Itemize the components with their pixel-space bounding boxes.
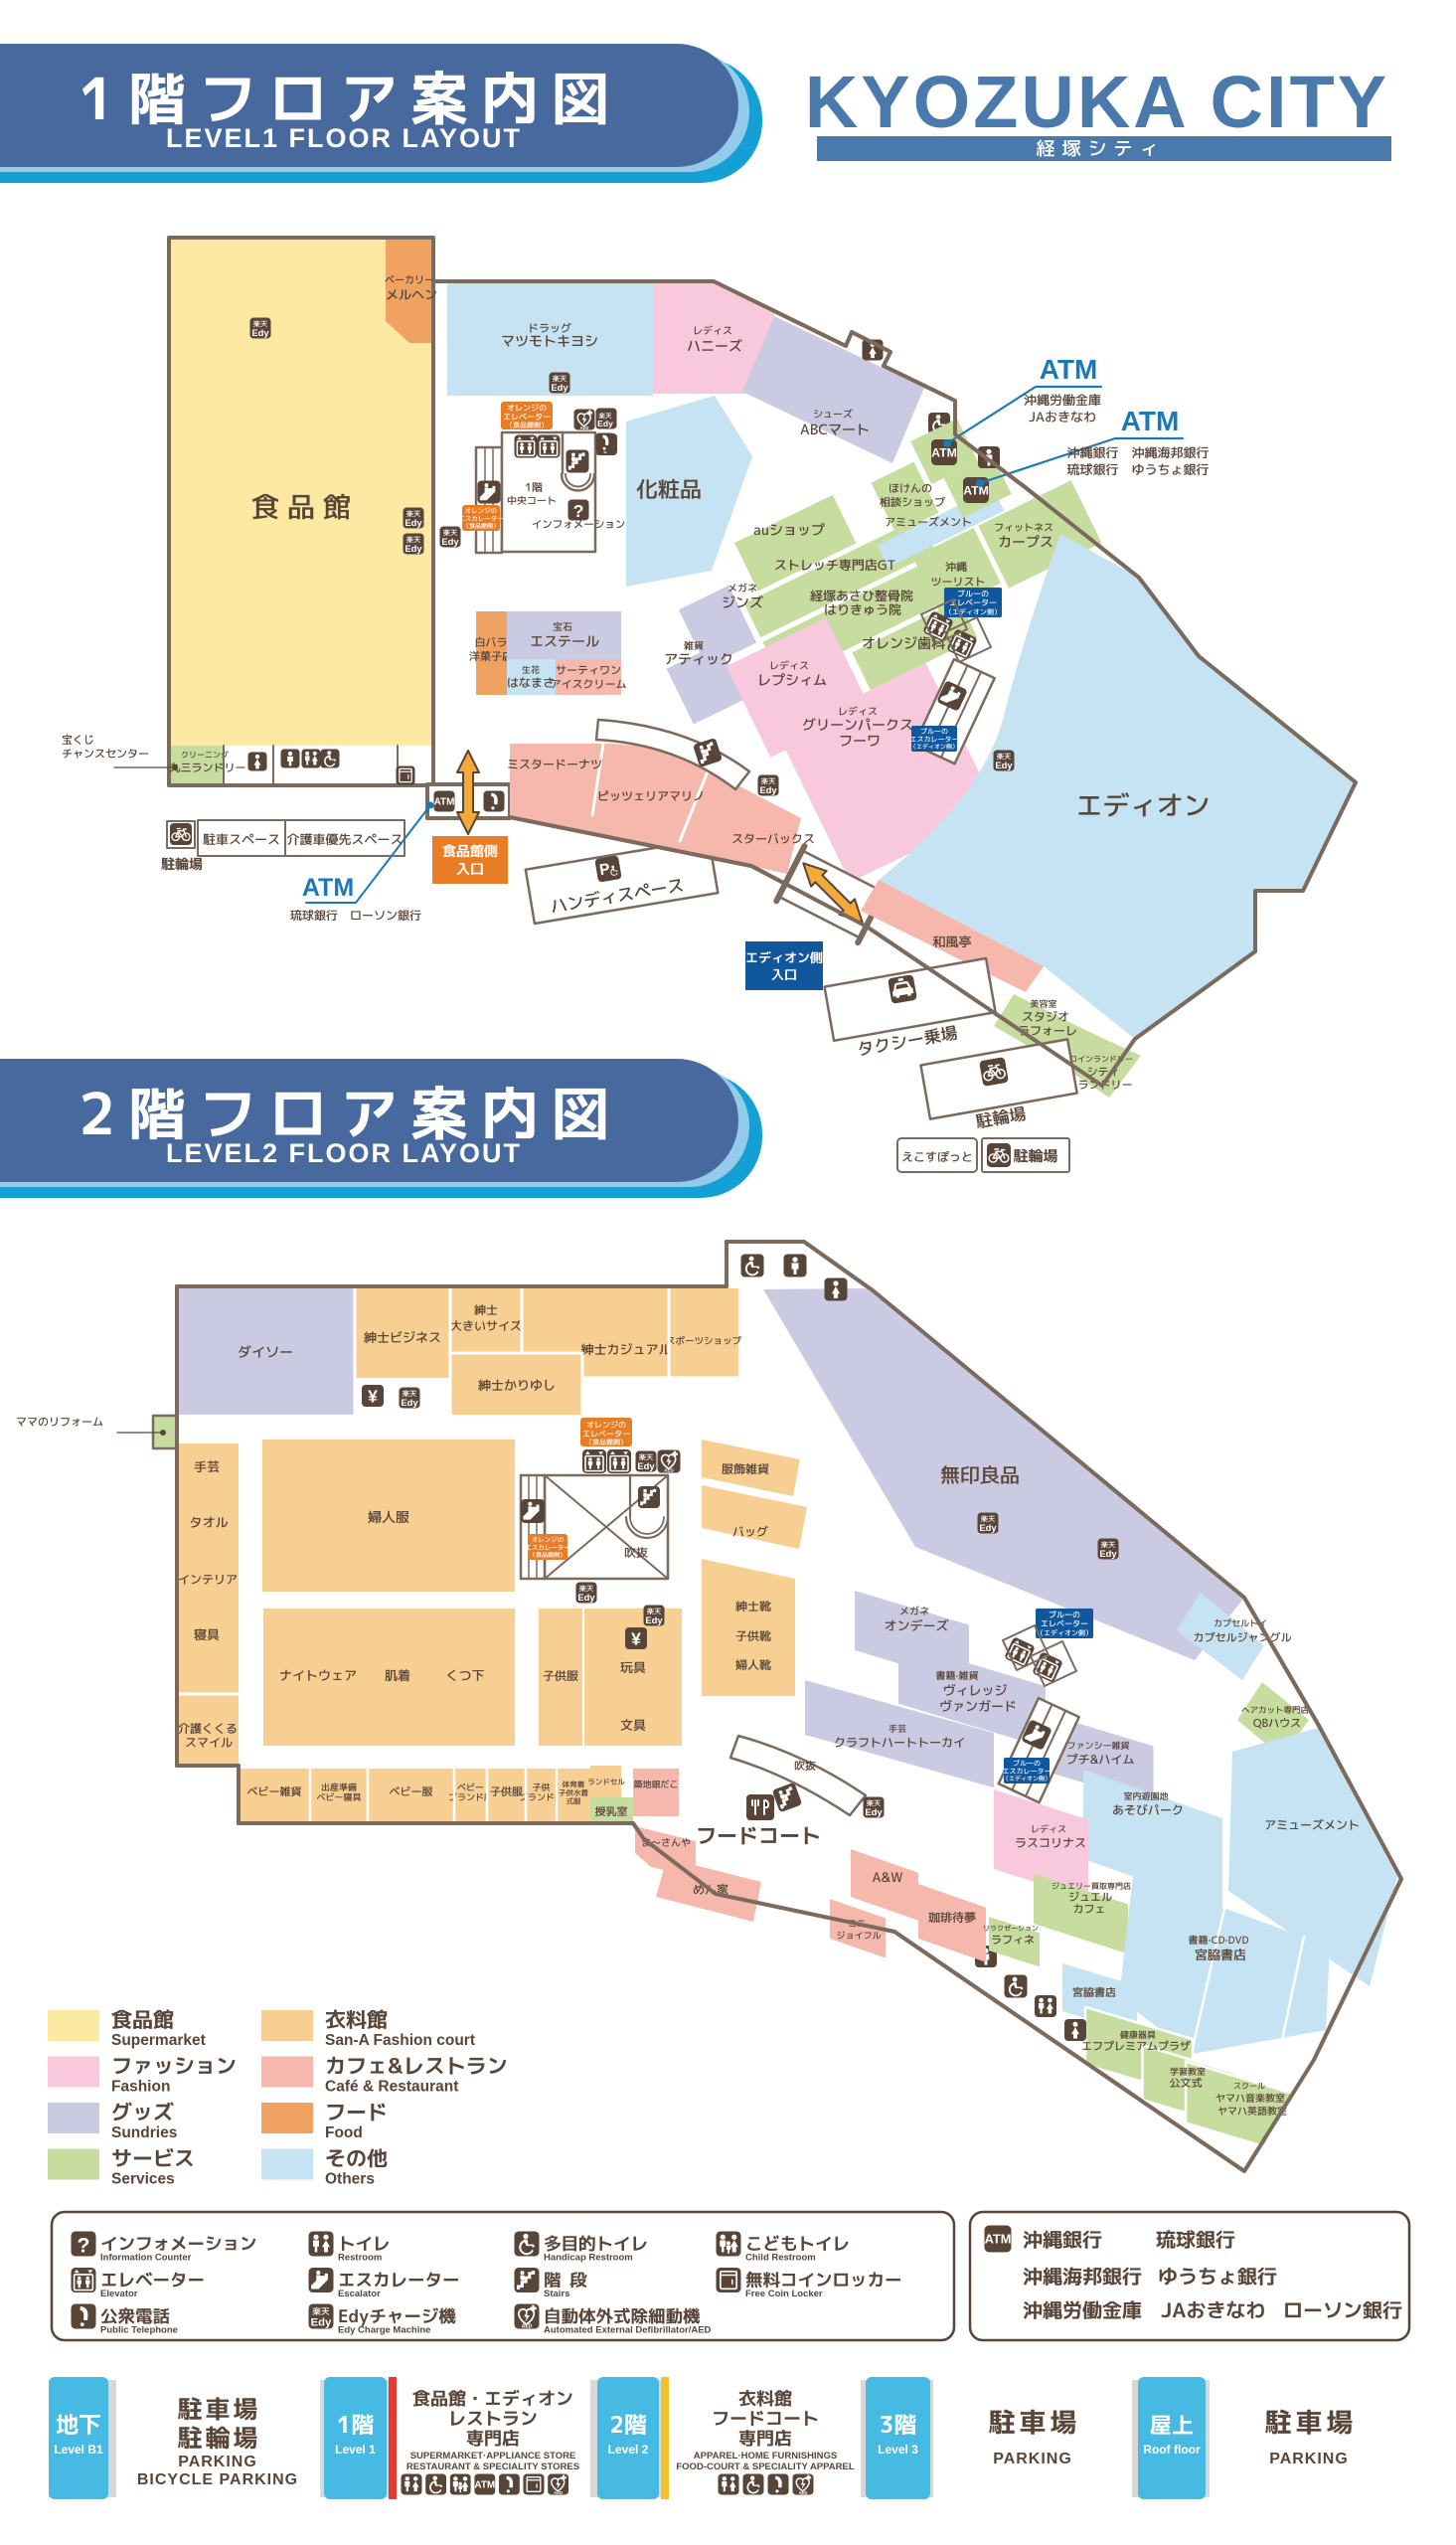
svg-text:Level 2: Level 2 (608, 2443, 649, 2457)
svg-text:PARKING: PARKING (178, 2454, 257, 2470)
svg-text:KYOZUKA CITY: KYOZUKA CITY (805, 61, 1389, 143)
svg-text:Others: Others (325, 2171, 375, 2188)
svg-text:Edy: Edy (979, 1523, 997, 1534)
svg-text:APPAREL·HOME FURNISHINGS: APPAREL·HOME FURNISHINGS (694, 2451, 837, 2461)
svg-text:San-A Fashion court: San-A Fashion court (325, 2032, 475, 2049)
svg-text:Supermarket: Supermarket (111, 2032, 206, 2049)
svg-text:Roof floor: Roof floor (1143, 2443, 1201, 2457)
svg-text:Edy: Edy (404, 544, 422, 555)
svg-text:Escalator: Escalator (338, 2289, 381, 2299)
svg-text:Handicap Restroom: Handicap Restroom (544, 2253, 633, 2264)
svg-text:Edy: Edy (311, 2317, 332, 2329)
svg-text:Level B1: Level B1 (54, 2443, 103, 2457)
svg-text:Edy: Edy (865, 1807, 883, 1818)
svg-text:FOOD-COURT & SPECIALITY APPARE: FOOD-COURT & SPECIALITY APPAREL (676, 2461, 854, 2472)
svg-text:Elevator: Elevator (100, 2289, 138, 2299)
svg-text:Edy: Edy (441, 537, 459, 548)
svg-text:BICYCLE PARKING: BICYCLE PARKING (137, 2471, 298, 2488)
svg-text:Edy: Edy (1099, 1549, 1117, 1560)
svg-text:PARKING: PARKING (1269, 2451, 1349, 2467)
svg-text:PARKING: PARKING (993, 2451, 1072, 2467)
svg-text:Automated External Defibrillat: Automated External Defibrillator/AED (544, 2325, 712, 2336)
svg-text:SUPERMARKET·APPLIANCE STORE: SUPERMARKET·APPLIANCE STORE (410, 2451, 576, 2461)
svg-text:Restroom: Restroom (338, 2253, 382, 2264)
svg-text:Child Restroom: Child Restroom (745, 2253, 816, 2264)
svg-text:RESTAURANT & SPECIALITY STORES: RESTAURANT & SPECIALITY STORES (406, 2461, 579, 2472)
svg-text:Public Telephone: Public Telephone (100, 2325, 178, 2336)
svg-text:Edy: Edy (577, 1593, 595, 1604)
svg-text:Free Coin Locker: Free Coin Locker (745, 2289, 823, 2299)
svg-text:Edy Charge Machine: Edy Charge Machine (338, 2325, 430, 2336)
svg-text:Edy: Edy (251, 328, 269, 339)
svg-text:Fashion: Fashion (111, 2079, 170, 2096)
svg-text:Level 1: Level 1 (335, 2443, 376, 2457)
svg-text:Stairs: Stairs (544, 2289, 569, 2299)
svg-text:Information Counter: Information Counter (100, 2253, 192, 2264)
svg-text:Café & Restaurant: Café & Restaurant (325, 2079, 458, 2096)
svg-text:Sundries: Sundries (111, 2124, 177, 2141)
svg-text:Edy: Edy (404, 518, 422, 529)
svg-text:ATM: ATM (1121, 406, 1180, 436)
svg-text:Food: Food (325, 2124, 363, 2141)
svg-text:ATM: ATM (1040, 354, 1098, 385)
svg-text:Edy: Edy (637, 1461, 655, 1472)
svg-text:Edy: Edy (551, 383, 568, 394)
svg-text:Edy: Edy (759, 785, 777, 796)
svg-text:LEVEL2 FLOOR LAYOUT: LEVEL2 FLOOR LAYOUT (166, 1138, 522, 1168)
svg-text:Edy: Edy (401, 1398, 418, 1409)
svg-text:LEVEL1 FLOOR LAYOUT: LEVEL1 FLOOR LAYOUT (166, 123, 522, 153)
svg-text:ATM: ATM (302, 874, 354, 902)
svg-text:Edy: Edy (995, 761, 1013, 771)
svg-text:Edy: Edy (645, 1615, 663, 1626)
svg-text:Edy: Edy (597, 419, 613, 428)
svg-text:Level 3: Level 3 (878, 2443, 918, 2457)
svg-text:Services: Services (111, 2171, 175, 2188)
